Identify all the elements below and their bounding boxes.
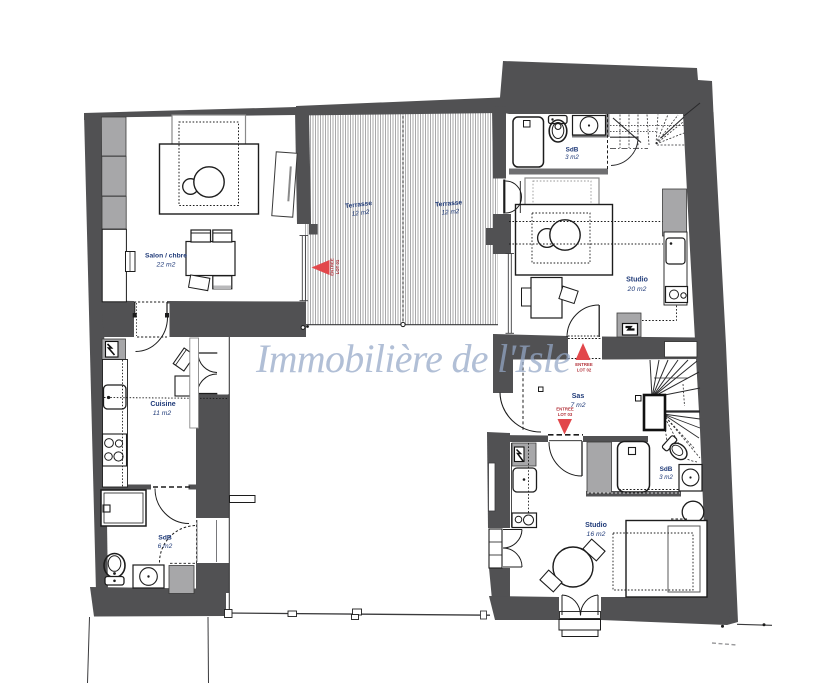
svg-text:3 m2: 3 m2 [565, 154, 579, 161]
svg-text:Cuisine: Cuisine [150, 401, 175, 408]
svg-text:Studio: Studio [585, 522, 607, 529]
svg-text:LOT 03: LOT 03 [558, 412, 573, 417]
svg-text:16 m2: 16 m2 [587, 531, 606, 538]
svg-text:SdB: SdB [566, 147, 579, 154]
svg-text:20 m2: 20 m2 [627, 286, 647, 293]
svg-text:3 m2: 3 m2 [659, 474, 673, 481]
svg-text:ENTREE: ENTREE [556, 407, 574, 412]
svg-text:SdB: SdB [158, 535, 172, 542]
svg-text:22 m2: 22 m2 [156, 262, 176, 269]
svg-text:6 m2: 6 m2 [158, 543, 173, 550]
svg-text:ENTREE: ENTREE [575, 362, 593, 367]
svg-text:Salon / chbre: Salon / chbre [145, 253, 187, 260]
svg-text:SdB: SdB [660, 466, 673, 473]
svg-text:LOT 01: LOT 01 [335, 259, 340, 274]
svg-text:Studio: Studio [626, 277, 648, 284]
svg-text:11 m2: 11 m2 [153, 410, 172, 417]
svg-text:LOT 02: LOT 02 [577, 368, 592, 373]
svg-text:Immobilière de l'Isle: Immobilière de l'Isle [255, 336, 571, 381]
svg-text:Sas: Sas [572, 393, 585, 400]
svg-text:ENTREE: ENTREE [330, 258, 335, 276]
